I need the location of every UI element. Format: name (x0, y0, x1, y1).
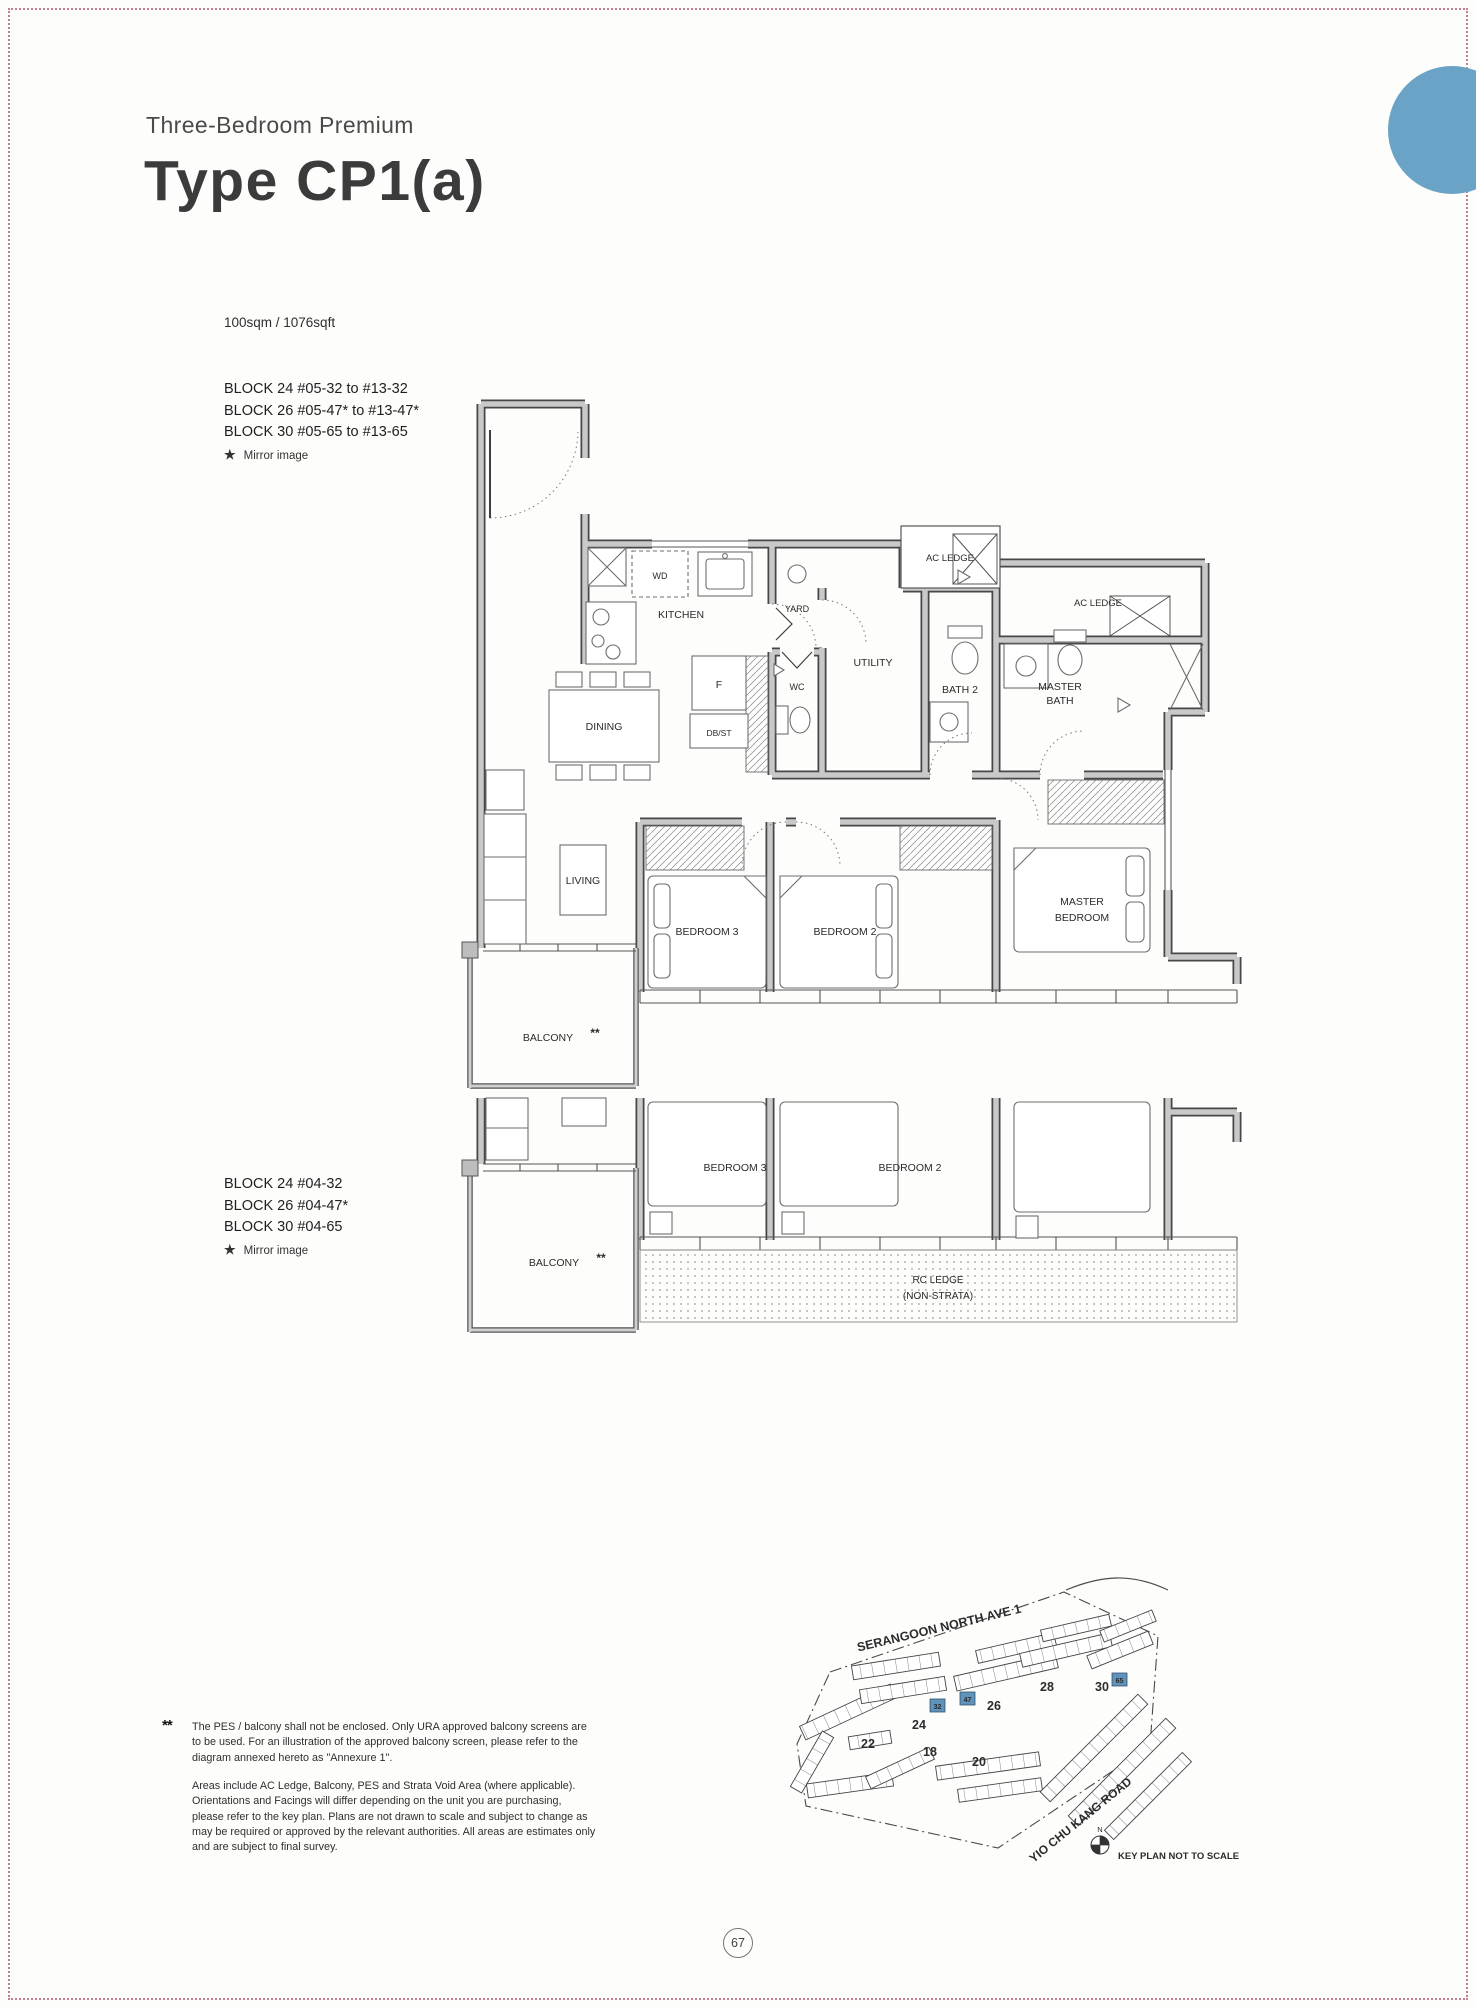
balcony-stars: ** (590, 1026, 600, 1040)
room-label-fridge: F (716, 679, 722, 691)
room-label-bedroom3: BEDROOM 3 (675, 926, 738, 938)
lower-floor-plan: BEDROOM 3 BEDROOM 2 BALCONY ** RC LEDGE … (462, 1098, 1237, 1332)
block-number-18: 18 (923, 1745, 937, 1759)
unit-number: 32 (934, 1704, 942, 1711)
room-label-balcony: BALCONY (529, 1257, 579, 1269)
side-table (486, 770, 524, 810)
block-number-26: 26 (987, 1699, 1001, 1713)
room-label-balcony: BALCONY (523, 1032, 573, 1044)
hob-icon (588, 548, 626, 586)
wardrobe (646, 826, 744, 870)
room-label-bedroom2: BEDROOM 2 (878, 1162, 941, 1174)
bed (780, 1102, 898, 1206)
room-label-rc-ledge: (NON-STRATA) (903, 1291, 973, 1302)
room-label-master-bath: BATH (1046, 695, 1073, 707)
room-label-living: LIVING (566, 875, 600, 887)
unit-number: 47 (964, 1697, 972, 1704)
block-number-30: 30 (1095, 1680, 1109, 1694)
kitchen-sink (698, 552, 752, 596)
wardrobe (900, 826, 992, 870)
room-label-kitchen: KITCHEN (658, 609, 704, 621)
page-number: 67 (731, 1936, 745, 1950)
room-label-yard: YARD (785, 604, 810, 614)
room-label-dining: DINING (586, 721, 623, 733)
basin-icon (788, 565, 806, 583)
door-leaves (490, 430, 812, 668)
tall-cabinet (746, 656, 768, 772)
toilet-icon (948, 626, 982, 674)
side-table (1016, 1216, 1038, 1238)
sofa (484, 814, 526, 944)
bed (648, 1102, 766, 1206)
road-line (1066, 1578, 1168, 1590)
basin-icon (930, 702, 968, 742)
toilet-icon (1054, 630, 1086, 675)
block-number-20: 20 (972, 1755, 986, 1769)
ac-ledges (901, 526, 1170, 636)
page-number-badge: 67 (723, 1928, 753, 1958)
footnote-areas: Areas include AC Ledge, Balcony, PES and… (192, 1779, 596, 1856)
footnotes: The PES / balcony shall not be enclosed.… (192, 1720, 596, 1869)
room-label-utility: UTILITY (853, 657, 892, 669)
side-table (782, 1212, 804, 1234)
room-label-rc-ledge: RC LEDGE (912, 1275, 963, 1286)
stove (586, 602, 636, 664)
room-label-dbst: DB/ST (706, 728, 731, 738)
block-number-22: 22 (861, 1737, 875, 1751)
block-number-28: 28 (1040, 1680, 1054, 1694)
shower-icon (1118, 698, 1130, 712)
toilet-icon (776, 706, 810, 734)
furniture (486, 1098, 1150, 1238)
room-label-ac-ledge: AC LEDGE (1074, 598, 1122, 609)
footnote-balcony: The PES / balcony shall not be enclosed.… (192, 1720, 596, 1766)
room-label-bath2: BATH 2 (942, 684, 978, 696)
room-label-master-bath: MASTER (1038, 681, 1082, 693)
room-label-wd: WD (653, 571, 668, 581)
brochure-page: Three-Bedroom Premium Type CP1(a) 100sqm… (0, 0, 1476, 2008)
shower-screen (1170, 644, 1203, 710)
room-label-wc: WC (790, 682, 805, 692)
sofa (486, 1098, 528, 1160)
upper-floor-plan: KITCHEN WD YARD UTILITY WC BATH 2 MASTER… (462, 404, 1237, 1088)
door-swing-icon (774, 664, 784, 676)
room-label-bedroom3: BEDROOM 3 (703, 1162, 766, 1174)
side-table (650, 1212, 672, 1234)
room-label-bedroom2: BEDROOM 2 (813, 926, 876, 938)
unit-number: 65 (1116, 1678, 1124, 1685)
room-label-master-bedroom: MASTER (1060, 896, 1104, 908)
room-label-master-bedroom: BEDROOM (1055, 912, 1109, 924)
key-plan: 32 47 65 22 24 18 20 26 28 30 SERANGOON … (790, 1578, 1239, 1865)
footnote-marker: ** (162, 1717, 172, 1734)
bed (1014, 1102, 1150, 1212)
coffee-table (562, 1098, 606, 1126)
rc-ledge (640, 1250, 1237, 1322)
compass-north: N (1097, 1825, 1102, 1834)
block-number-24: 24 (912, 1718, 926, 1732)
wardrobe (1048, 780, 1164, 824)
room-label-ac-ledge: AC LEDGE (926, 553, 974, 564)
floor-plan-svg: KITCHEN WD YARD UTILITY WC BATH 2 MASTER… (0, 0, 1476, 2008)
balcony-stars: ** (596, 1251, 606, 1265)
unit-clusters (790, 1610, 1191, 1840)
keyplan-caption: KEY PLAN NOT TO SCALE (1118, 1851, 1239, 1862)
